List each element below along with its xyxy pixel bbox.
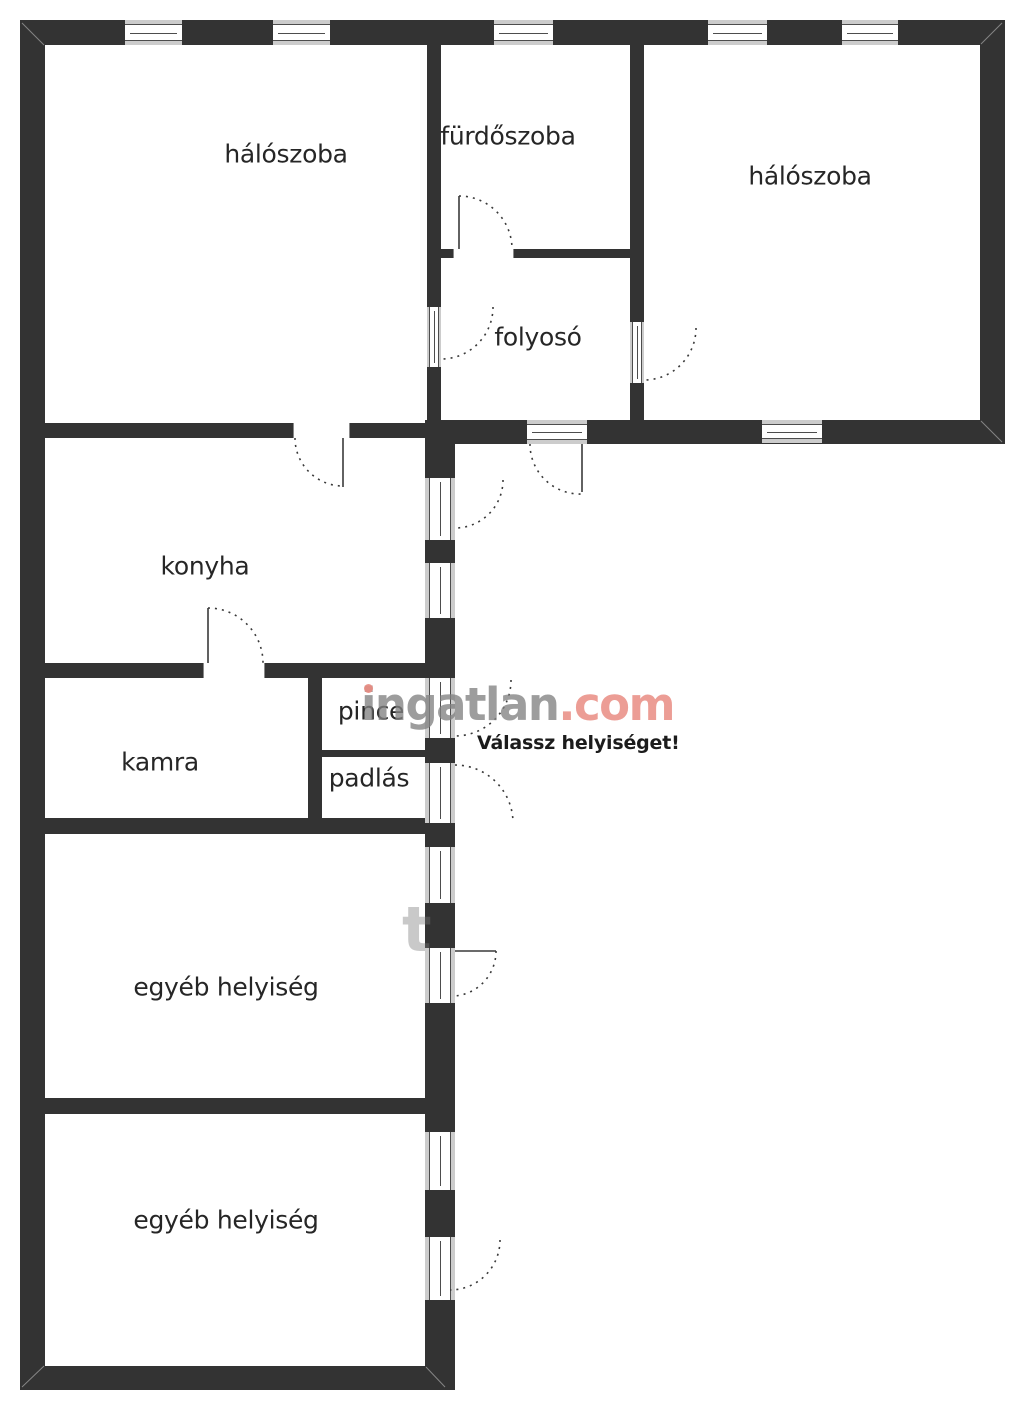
door-attic-outside — [425, 763, 455, 823]
door-other2-outside — [425, 1237, 455, 1300]
window-kitchen-right — [425, 563, 455, 618]
ingatlan-watermark: ingatlan.com — [361, 678, 674, 731]
door-hall-exit — [527, 420, 587, 444]
floor-plan: hálószoba fürdőszoba hálószoba folyosó k… — [0, 0, 1024, 1411]
wall-pantry-other1 — [45, 818, 455, 834]
window-top-3 — [494, 20, 553, 45]
door-kitchen-pantry — [203, 663, 265, 678]
window-top-5 — [842, 20, 898, 45]
room-label-kamra[interactable]: kamra — [121, 748, 199, 777]
wall-cellar-attic — [322, 750, 428, 757]
room-label-egyeb-2[interactable]: egyéb helyiség — [133, 1206, 318, 1235]
wall-pantry-cellar — [308, 678, 322, 818]
door-kitchen-outside — [425, 478, 455, 540]
choose-room-prompt: Válassz helyiséget! — [477, 732, 680, 754]
room-label-egyeb-1[interactable]: egyéb helyiség — [133, 973, 318, 1002]
room-label-konyha[interactable]: konyha — [161, 552, 250, 581]
wall-bottom — [20, 1366, 447, 1390]
wall-right — [980, 20, 1005, 443]
door-bedroom1-hall — [427, 307, 441, 367]
window-bedroom2-bottom — [762, 420, 822, 443]
wall-bedroom1-kitchen — [45, 423, 428, 438]
room-label-padlas[interactable]: padlás — [329, 764, 410, 793]
watermark-brand: ingatlan — [361, 678, 558, 731]
window-other2-right — [425, 1132, 455, 1190]
wall-other1-other2 — [45, 1098, 455, 1114]
window-top-2 — [273, 20, 330, 45]
door-other1-outside — [425, 948, 455, 1003]
room-label-haloszoba-2[interactable]: hálószoba — [748, 162, 871, 191]
wall-left — [20, 20, 45, 1390]
wall-hall-bedroom2-bottom — [425, 420, 1005, 444]
window-top-1 — [125, 20, 182, 45]
watermark-i-dot — [364, 684, 373, 693]
room-label-haloszoba-1[interactable]: hálószoba — [224, 140, 347, 169]
window-top-4 — [708, 20, 767, 45]
door-bathroom — [453, 249, 514, 258]
room-label-folyoso[interactable]: folyosó — [494, 323, 581, 352]
room-label-furdoszoba[interactable]: fürdőszoba — [440, 122, 575, 151]
watermark-tld: .com — [558, 678, 674, 731]
window-other1-right — [425, 847, 455, 903]
door-bedroom1-kitchen — [293, 423, 350, 438]
door-hall-bedroom2 — [630, 322, 644, 383]
